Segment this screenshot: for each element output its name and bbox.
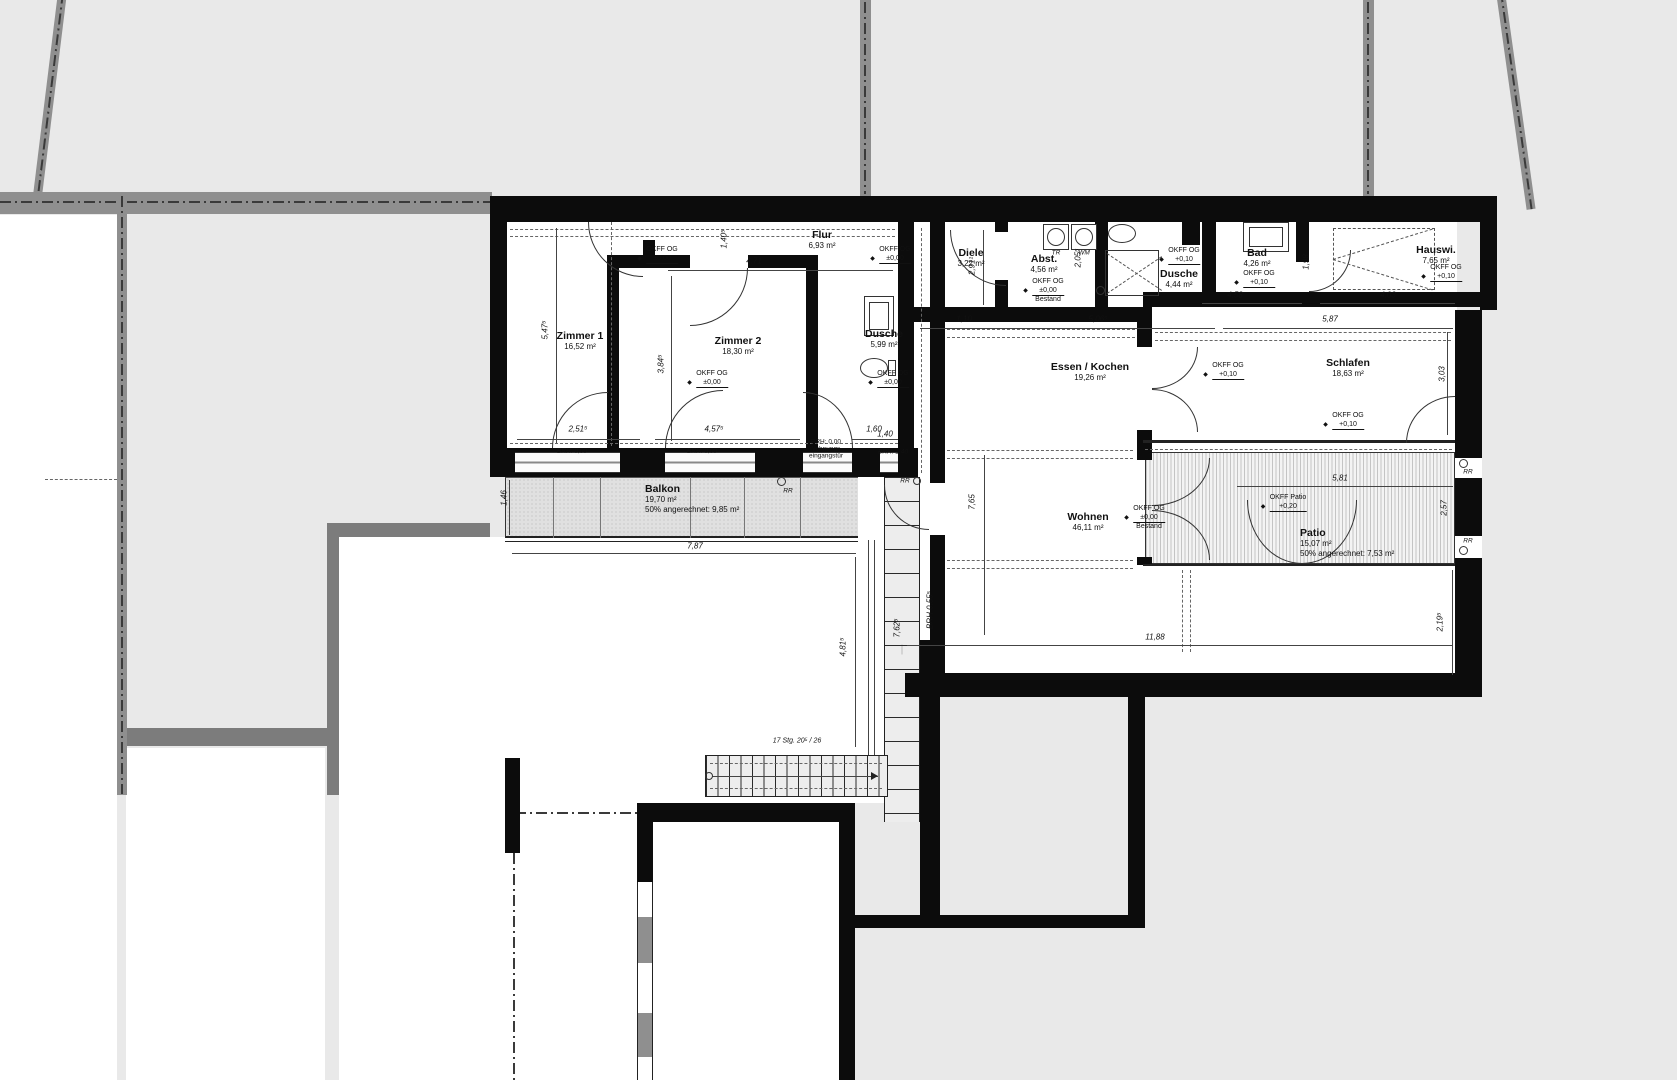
level-text: OKFF OG <box>1332 412 1364 421</box>
boundary-line <box>36 0 63 201</box>
datum-icon: ◆ <box>1261 503 1266 512</box>
boundary-line <box>1367 2 1369 194</box>
downpipe-label: RR <box>783 488 792 495</box>
site-band-right <box>1363 0 1374 196</box>
level-value: ◆+0,10 <box>1243 279 1275 289</box>
boundary-line <box>121 196 123 794</box>
dim-line <box>920 328 995 329</box>
room-label-dusche-rechts: Dusche4,44 m² <box>1160 268 1198 290</box>
dim-line <box>855 557 856 747</box>
wall <box>607 268 619 448</box>
glazing-dash <box>947 458 1133 459</box>
datum-icon: ◆ <box>870 255 875 264</box>
dimension: 1,10 <box>956 315 972 324</box>
room-name: Abst. <box>1030 253 1057 265</box>
boundary-dash <box>45 479 117 480</box>
level-value: ◆±0,00 <box>1032 287 1064 297</box>
room-label-bad: Bad4,26 m² <box>1243 247 1270 269</box>
stair-walkline <box>712 776 878 777</box>
level-text: OKFF Patio <box>1270 494 1307 503</box>
datum-icon: ◆ <box>1421 273 1426 282</box>
dimension: 1,40⁵ <box>720 230 729 249</box>
site-band-top <box>0 192 492 214</box>
level-value: ◆+0,10 <box>1332 421 1364 431</box>
level-number: ±0,00 <box>653 255 670 262</box>
room-area: 5,99 m² <box>865 340 903 350</box>
dimension: 7,87 <box>687 542 703 551</box>
level-marker: OKFF OG◆+0,10 <box>1212 362 1244 380</box>
level-text: OKFF OG <box>1133 505 1165 514</box>
stair-rail-dash <box>710 788 882 789</box>
level-number: +0,10 <box>1219 371 1237 378</box>
level-number: +0,10 <box>1175 256 1193 263</box>
window-pier <box>638 1013 652 1057</box>
level-number: +0,10 <box>1250 279 1268 286</box>
dimension: 1,40 <box>877 430 893 439</box>
datum-icon: ◆ <box>868 379 873 388</box>
level-marker: OKFF OG◆±0,00Bestand <box>1032 278 1064 305</box>
room-name: Dusche <box>865 328 903 340</box>
axis-dash <box>921 228 922 473</box>
wall <box>1202 222 1216 292</box>
retaining-wall <box>327 523 339 795</box>
dim-line <box>852 439 898 440</box>
dim-line <box>671 276 672 441</box>
room-label-balkon: Balkon19,70 m²50% angerechnet: 9,85 m² <box>645 483 739 515</box>
retaining-wall <box>339 523 490 537</box>
room-area: 4,44 m² <box>1160 280 1198 290</box>
room-area: 19,70 m² <box>645 495 739 505</box>
level-marker: OKFF OG◆±0,00 <box>696 370 728 388</box>
balcony-joint <box>800 477 801 538</box>
dim-line <box>1237 486 1453 487</box>
wall-lower-unit <box>839 822 855 1080</box>
wall-lower-unit <box>839 915 1145 928</box>
datum-icon: ◆ <box>1023 287 1028 296</box>
room-area: 4,56 m² <box>1030 265 1057 275</box>
drain-icon <box>1096 286 1105 295</box>
level-value: ◆±0,00 <box>877 379 909 389</box>
entry-door-text: Wohnungs- <box>809 446 843 453</box>
room-name: Hauswi. <box>1416 244 1456 256</box>
room-label-hauswi: Hauswi.7,65 m² <box>1416 244 1456 266</box>
dim-line <box>1223 328 1453 329</box>
balcony-joint <box>744 477 745 538</box>
level-text: OKFF OG <box>696 370 728 379</box>
room-area: 46,11 m² <box>1067 523 1108 533</box>
wall-exterior-left <box>490 222 507 477</box>
glazing-dash <box>947 450 1133 451</box>
level-number: +0,10 <box>1437 273 1455 280</box>
wall <box>913 307 1143 322</box>
datum-icon: ◆ <box>1159 256 1164 265</box>
glazing-dash <box>947 560 1133 561</box>
level-note: Bestand <box>1032 296 1064 305</box>
level-marker: OKFF OG◆±0,00 <box>877 370 909 388</box>
wall <box>930 222 945 483</box>
level-number: +0,10 <box>1339 421 1357 428</box>
dim-line <box>984 455 985 635</box>
edge-line <box>868 540 869 755</box>
room-name: Schlafen <box>1326 357 1370 369</box>
room-area: 3,22 m² <box>957 259 984 269</box>
room-label-zimmer2: Zimmer 218,30 m² <box>715 335 762 357</box>
dryer-drum-icon <box>1047 228 1065 246</box>
wall-lower-unit <box>637 822 653 882</box>
boundary-line <box>513 853 515 1080</box>
dimension: 1,98 <box>1302 254 1311 270</box>
downpipe-icon <box>1459 459 1468 468</box>
dimension: 2,05⁵ <box>1074 249 1083 268</box>
site-band-diagonal-left <box>32 0 67 202</box>
dimension: 5,87 <box>1322 315 1338 324</box>
level-marker: OKFF OG◆+0,10 <box>1332 412 1364 430</box>
downpipe-icon <box>913 477 921 485</box>
balcony-edge <box>505 541 858 542</box>
dimension: 11,88 <box>1145 633 1164 642</box>
level-number: +0,20 <box>1279 503 1297 510</box>
level-text: OKFF OG <box>1243 270 1275 279</box>
balcony-joint <box>553 477 554 538</box>
lower-unit-interior <box>653 822 839 1080</box>
room-area: 6,93 m² <box>808 241 835 251</box>
room-area: 18,30 m² <box>715 347 762 357</box>
wall-lower-unit <box>637 803 855 822</box>
level-value: ◆±0,00 <box>696 379 728 389</box>
level-marker: OKFF Patio◆+0,20 <box>1270 494 1307 512</box>
dim-line <box>1320 303 1455 304</box>
edge-line <box>874 540 875 755</box>
wall-lower-unit <box>920 640 940 928</box>
level-text: OKFF OG <box>646 246 678 255</box>
wall-stub <box>505 758 520 853</box>
downpipe-icon <box>777 477 786 486</box>
level-number: ±0,00 <box>886 255 903 262</box>
patio-edge <box>1143 564 1455 566</box>
sill-height-label: BRH: 1,40 <box>878 449 908 456</box>
room-name: Flur <box>808 229 835 241</box>
level-text: OKFF OG <box>1212 362 1244 371</box>
glazing-dash <box>510 236 895 237</box>
glazing-dash <box>1155 340 1451 341</box>
room-area: 7,65 m² <box>1416 256 1456 266</box>
dimension: 5,06⁵ <box>1089 315 1108 324</box>
room-label-schlafen: Schlafen18,63 m² <box>1326 357 1370 379</box>
room-label-abst: Abst.4,56 m² <box>1030 253 1057 275</box>
dim-line <box>995 328 1215 329</box>
site-band-diagonal-right <box>1496 0 1536 210</box>
datum-icon: ◆ <box>1323 421 1328 430</box>
sink-basin-icon <box>1249 227 1283 247</box>
level-note: Bestand <box>1133 523 1165 532</box>
room-label-diele: Diele3,22 m² <box>957 247 984 269</box>
room-area: 16,52 m² <box>557 342 604 352</box>
courtyard-lower <box>339 803 637 1080</box>
dim-line <box>1202 303 1302 304</box>
room-area: 4,26 m² <box>1243 259 1270 269</box>
glazing-dash <box>1155 332 1451 333</box>
dimension: 4,58 <box>1227 291 1243 300</box>
level-marker: OKFF OG◆+0,10 <box>1168 247 1200 265</box>
datum-icon: ◆ <box>637 255 642 264</box>
axis-dash <box>1190 570 1191 652</box>
wall-exterior-right <box>1480 222 1497 310</box>
downpipe-icon <box>1459 546 1468 555</box>
floor-plan: RR RR <box>0 0 1677 1080</box>
sink-basin-icon <box>869 302 889 330</box>
level-value: ◆+0,10 <box>1212 371 1244 381</box>
downpipe-label: RR <box>1463 469 1472 476</box>
room-label-dusche-links: Dusche5,99 m² <box>865 328 903 350</box>
datum-icon: ◆ <box>687 379 692 388</box>
ground-white-left <box>0 215 117 1080</box>
dimension: 4,71 <box>746 257 762 266</box>
room-name: Balkon <box>645 483 739 495</box>
dimension: BRH 0,55⁵ <box>926 591 935 629</box>
wall-exterior-top <box>490 196 1497 222</box>
room-label-patio: Patio15,07 m²50% angerechnet: 7,53 m² <box>1300 527 1394 559</box>
level-number: ±0,00 <box>703 379 720 386</box>
room-name: Patio <box>1300 527 1394 539</box>
room-note: 50% angerechnet: 7,53 m² <box>1300 549 1394 559</box>
glazing-dash <box>947 568 1133 569</box>
room-area: 19,26 m² <box>1051 373 1129 383</box>
glazing-dash <box>510 229 895 230</box>
ground-white-bottom-left <box>126 748 325 1080</box>
washer-drum-icon <box>1075 228 1093 246</box>
level-text: OKFF OG <box>877 370 909 379</box>
exterior-walkway <box>884 477 920 822</box>
window <box>665 452 755 473</box>
stair-walkline-start <box>705 772 713 780</box>
dimension: 4,03 <box>1380 291 1396 300</box>
room-name: Bad <box>1243 247 1270 259</box>
level-number: ±0,00 <box>1039 287 1056 294</box>
wall <box>1137 307 1152 347</box>
level-number: ±0,00 <box>884 379 901 386</box>
level-text: OKFF OG <box>879 246 911 255</box>
boundary-line <box>0 201 490 203</box>
room-area: 15,07 m² <box>1300 539 1394 549</box>
dim-line <box>1452 570 1453 675</box>
level-marker: OKFF OG◆±0,00Bestand <box>1133 505 1165 532</box>
level-text: OKFF OG <box>1032 278 1064 287</box>
level-marker: OKFF OG◆±0,00 <box>879 246 911 264</box>
stairs-label: 17 Stg. 20⁵ / 26 <box>773 737 821 746</box>
room-name: Essen / Kochen <box>1051 361 1129 373</box>
retaining-wall <box>127 728 327 746</box>
room-label-flur: Flur6,93 m² <box>808 229 835 251</box>
room-label-zimmer1: Zimmer 116,52 m² <box>557 330 604 352</box>
dimension: 4,81⁵ <box>839 638 848 657</box>
dim-line <box>509 480 510 535</box>
datum-icon: ◆ <box>1234 279 1239 288</box>
room-label-essen-kochen: Essen / Kochen19,26 m² <box>1051 361 1129 383</box>
glazing-dash <box>1145 449 1452 450</box>
downpipe-label: RR <box>900 478 909 485</box>
level-marker: OKFF OG◆±0,00 <box>646 246 678 264</box>
wall-exterior-right <box>1455 310 1482 677</box>
sill-height-label: BRH: 0,00 <box>687 448 717 455</box>
dimension: 5,47⁵ <box>541 321 550 340</box>
balcony-joint <box>600 477 601 538</box>
wall <box>1143 292 1497 307</box>
sill-height-label: BRH: 0,00 <box>557 448 587 455</box>
sill-height-label: BRH: 0,00 <box>809 439 843 446</box>
dimension: 1,46 <box>500 490 509 506</box>
level-value: ◆+0,10 <box>1430 273 1462 283</box>
window <box>515 452 620 473</box>
dimension: 3,03 <box>1438 366 1447 382</box>
level-number: ±0,00 <box>1140 514 1157 521</box>
boundary-line <box>864 2 866 194</box>
room-label-wohnen: Wohnen46,11 m² <box>1067 511 1108 533</box>
dimension: 2,51⁵ <box>569 425 588 434</box>
glazing-dash <box>947 329 1135 330</box>
site-band-mid <box>860 0 871 196</box>
dimension: 2,57 <box>1440 500 1449 516</box>
datum-icon: ◆ <box>1124 514 1129 523</box>
room-name: Zimmer 1 <box>557 330 604 342</box>
dimension: 2,19⁵ <box>1436 613 1445 632</box>
room-name: Diele <box>957 247 984 259</box>
dimension: 5,81 <box>1332 474 1348 483</box>
level-marker: OKFF OG◆+0,10 <box>1430 264 1462 282</box>
wall <box>1182 222 1200 245</box>
room-name: Zimmer 2 <box>715 335 762 347</box>
wall-exterior-bottom <box>905 673 1482 697</box>
level-value: ◆+0,10 <box>1168 256 1200 266</box>
downpipe-label: RR <box>1463 538 1472 545</box>
room-note: 50% angerechnet: 9,85 m² <box>645 505 739 515</box>
level-text: OKFF OG <box>1168 247 1200 256</box>
room-area: 18,63 m² <box>1326 369 1370 379</box>
axis-dash <box>1182 570 1183 652</box>
window-pier <box>638 917 652 963</box>
dimension: 3,84⁵ <box>657 355 666 374</box>
dimension: 7,65 <box>968 494 977 510</box>
level-value: ◆±0,00 <box>879 255 911 265</box>
dimension: 4,57⁵ <box>705 425 724 434</box>
stair-direction-arrow <box>871 772 878 780</box>
level-marker: OKFF OG◆+0,10 <box>1243 270 1275 288</box>
wall-lower-unit <box>1128 697 1145 928</box>
level-value: ◆±0,00 <box>646 255 678 265</box>
stair-rail-dash <box>710 763 882 764</box>
glazing-dash <box>947 337 1135 338</box>
boundary-line <box>1500 0 1532 209</box>
room-name: Wohnen <box>1067 511 1108 523</box>
wall <box>1137 452 1152 460</box>
level-value: ◆±0,00 <box>1133 514 1165 524</box>
dim-line <box>512 553 856 554</box>
dimension: 7,62⁵ <box>893 619 902 638</box>
toilet-icon <box>1108 224 1136 243</box>
boundary-line <box>515 812 655 814</box>
datum-icon: ◆ <box>1203 371 1208 380</box>
level-value: ◆+0,20 <box>1270 503 1307 513</box>
dim-line <box>907 645 1453 646</box>
room-name: Dusche <box>1160 268 1198 280</box>
entry-door-label: BRH: 0,00 Wohnungs- eingangstür <box>809 439 843 460</box>
entry-door-text: eingangstür <box>809 453 843 460</box>
